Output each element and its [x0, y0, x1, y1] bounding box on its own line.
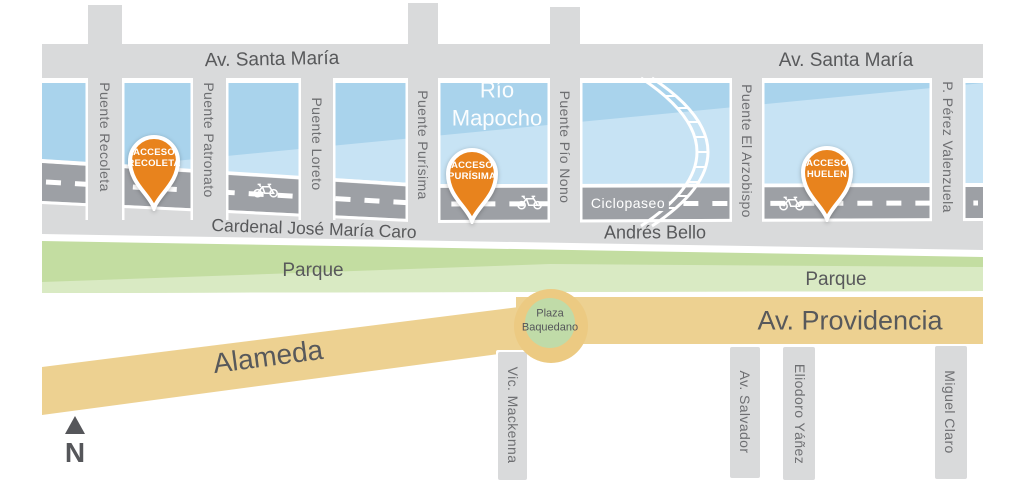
north-arrow-icon — [65, 416, 85, 434]
river-label-rio-mapocho: Río Mapocho — [452, 77, 543, 132]
street-label-av-santa-maria-left: Av. Santa María — [205, 48, 340, 72]
bridge-label-el-arzobispo: Puente El Arzobispo — [739, 84, 755, 218]
pin-line2: HUELEN — [797, 169, 857, 180]
plaza-label-line2: Baquedano — [522, 321, 578, 335]
park-label-left: Parque — [282, 260, 343, 282]
street-label-av-salvador: Av. Salvador — [737, 371, 753, 454]
pin-line1: ACCESO — [442, 160, 502, 171]
bridge-label-recoleta: Puente Recoleta — [97, 82, 113, 192]
bridge-label-loreto: Puente Loreto — [309, 97, 325, 190]
street-label-av-providencia: Av. Providencia — [757, 306, 942, 337]
street-label-miguel-claro: Miguel Claro — [942, 370, 958, 453]
access-pin-recoleta[interactable]: ACCESO RECOLETA — [124, 131, 184, 211]
bridge-label-pio-nono: Puente Pío Nono — [557, 91, 573, 204]
river-label-line2: Mapocho — [452, 104, 543, 132]
bridge-notch-pio-nono — [550, 7, 580, 47]
bike-path-label: Ciclopaseo — [587, 195, 669, 211]
bridge-notch-recoleta — [88, 5, 122, 47]
access-pin-label: ACCESO HUELEN — [797, 158, 857, 181]
santiago-river-access-map: Av. Santa María Av. Santa María Río Mapo… — [0, 0, 1024, 497]
compass-n-label: N — [53, 437, 97, 469]
map-pin-icon — [797, 142, 857, 222]
bridge-notch-purisima — [408, 3, 438, 47]
street-label-andres-bello: Andrés Bello — [604, 223, 706, 244]
pin-line2: RECOLETA — [124, 158, 184, 169]
river-label-line1: Río — [452, 77, 543, 105]
compass-north: N — [53, 416, 97, 469]
plaza-label-line1: Plaza — [522, 307, 578, 321]
access-pin-huelen[interactable]: ACCESO HUELEN — [797, 142, 857, 222]
map-pin-icon — [442, 144, 502, 224]
access-pin-label: ACCESO PURÍSIMA — [442, 160, 502, 183]
pin-line1: ACCESO — [797, 158, 857, 169]
bridge-label-perez-valenzuela: P. Pérez Valenzuela — [940, 81, 956, 213]
pin-line1: ACCESO — [124, 147, 184, 158]
street-label-av-santa-maria-right: Av. Santa María — [779, 50, 913, 72]
map-pin-icon — [124, 131, 184, 211]
cross-street-strips — [496, 344, 969, 482]
street-label-vic-mackenna: Vic. Mackenna — [505, 367, 521, 464]
bridge-label-purisima: Puente Purísima — [415, 90, 431, 200]
bridge-label-patronato: Puente Patronato — [201, 82, 217, 197]
access-pin-label: ACCESO RECOLETA — [124, 147, 184, 170]
access-pin-purisima[interactable]: ACCESO PURÍSIMA — [442, 144, 502, 224]
street-label-eliodoro-yanez: Eliodoro Yáñez — [792, 364, 808, 464]
pin-line2: PURÍSIMA — [442, 171, 502, 182]
park-label-right: Parque — [805, 269, 866, 291]
plaza-baquedano-label: Plaza Baquedano — [522, 307, 578, 335]
